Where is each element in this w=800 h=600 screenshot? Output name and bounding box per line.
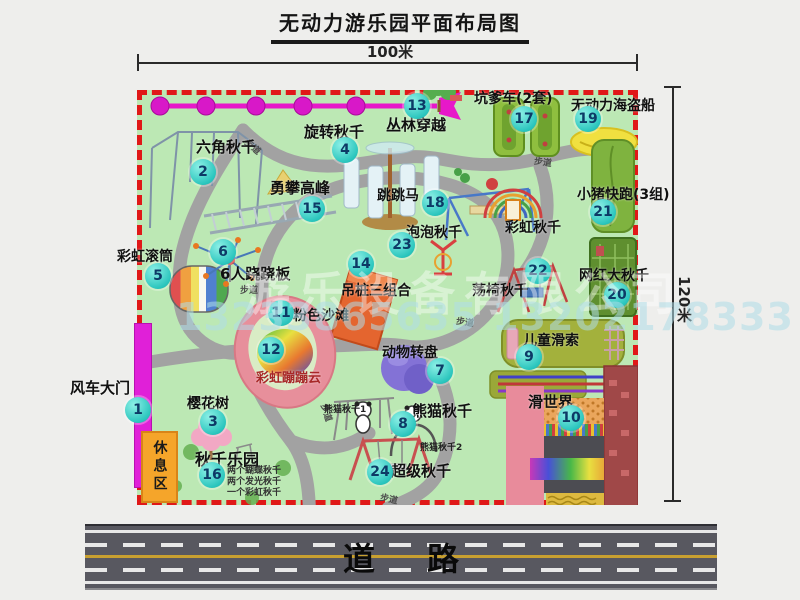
label-peak-climbing: 勇攀高峰 [270, 177, 330, 198]
swing-park-note: 一个彩虹秋千 [227, 488, 281, 499]
label-panda-swing-1: 熊猫秋千1 [324, 402, 366, 415]
dimension-width-line [137, 62, 638, 64]
badge-kids-zipline: 9 [516, 344, 542, 370]
badge-six-person-seesaw: 6 [210, 239, 236, 265]
rest-area-label: 休息区 [150, 440, 170, 494]
badge-super-swing: 24 [367, 459, 393, 485]
park-layout-map: 无动力游乐园平面布局图 100米 120米 [0, 0, 800, 600]
label-rainbow-swing: 彩虹秋千 [505, 217, 561, 237]
badge-cherry-tree: 3 [200, 409, 226, 435]
badge-pirate-ship: 19 [575, 106, 601, 132]
badge-peak-climbing: 15 [299, 196, 325, 222]
dimension-height-tick-top [664, 86, 681, 88]
dimension-height-tick-bottom [664, 500, 681, 502]
label-pig-run: 小猪快跑(3组) [577, 184, 670, 204]
dimension-width-label: 100米 [355, 41, 425, 62]
label-windmill-gate: 风车大门 [70, 377, 130, 398]
badge-jumping-horse: 18 [422, 190, 448, 216]
label-rotating-swing: 旋转秋千 [304, 121, 364, 142]
badge-rotating-swing: 4 [332, 137, 358, 163]
road-label: 道路 [291, 534, 511, 580]
badge-swing-park: 16 [199, 462, 225, 488]
label-rainbow-bounce-cloud: 彩虹蹦蹦云 [256, 367, 321, 386]
label-jumping-horse: 跳跳马 [377, 185, 419, 205]
road-edge-line [85, 530, 717, 533]
label-panda-swing-2: 熊猫秋千2 [420, 440, 462, 453]
badge-rainbow-bounce-cloud: 12 [258, 337, 284, 363]
swing-park-note: 两个发光秋千 [227, 477, 281, 488]
dimension-width-tick-right [636, 54, 638, 71]
swing-park-note: 两个蝴蝶秋千 [227, 466, 281, 477]
swing-park-notes: 两个蝴蝶秋千 两个发光秋千 一个彩虹秋千 [227, 466, 281, 499]
badge-jungle-crossing: 13 [404, 93, 430, 119]
watermark-phone: 13233865635 13202178333 [176, 295, 794, 339]
label-animal-carousel: 动物转盘 [382, 342, 438, 362]
label-super-swing: 超级秋千 [391, 460, 451, 481]
rest-area: 休息区 [141, 431, 178, 503]
label-bubble-swing: 泡泡秋千 [406, 222, 462, 242]
badge-bubble-swing: 23 [389, 232, 415, 258]
badge-pit-car: 17 [511, 106, 537, 132]
badge-hexagon-swing: 2 [190, 159, 216, 185]
road: 道路 [85, 524, 717, 590]
badge-panda-swing: 8 [390, 411, 416, 437]
badge-animal-carousel: 7 [427, 358, 453, 384]
path-label: 步道 [533, 154, 553, 169]
badge-windmill-gate: 1 [125, 397, 151, 423]
dimension-width-tick-left [137, 54, 139, 71]
page-title: 无动力游乐园平面布局图 [271, 7, 529, 44]
label-pit-car: 坑爹车(2套) [474, 88, 553, 108]
road-edge-line [85, 581, 717, 584]
badge-slide-world: 10 [558, 405, 584, 431]
label-rainbow-roller: 彩虹滚筒 [117, 246, 173, 266]
label-hexagon-swing: 六角秋千 [196, 136, 256, 157]
badge-rainbow-roller: 5 [145, 263, 171, 289]
badge-pig-run: 21 [590, 199, 616, 225]
label-panda-swing: 熊猫秋千 [412, 400, 472, 421]
